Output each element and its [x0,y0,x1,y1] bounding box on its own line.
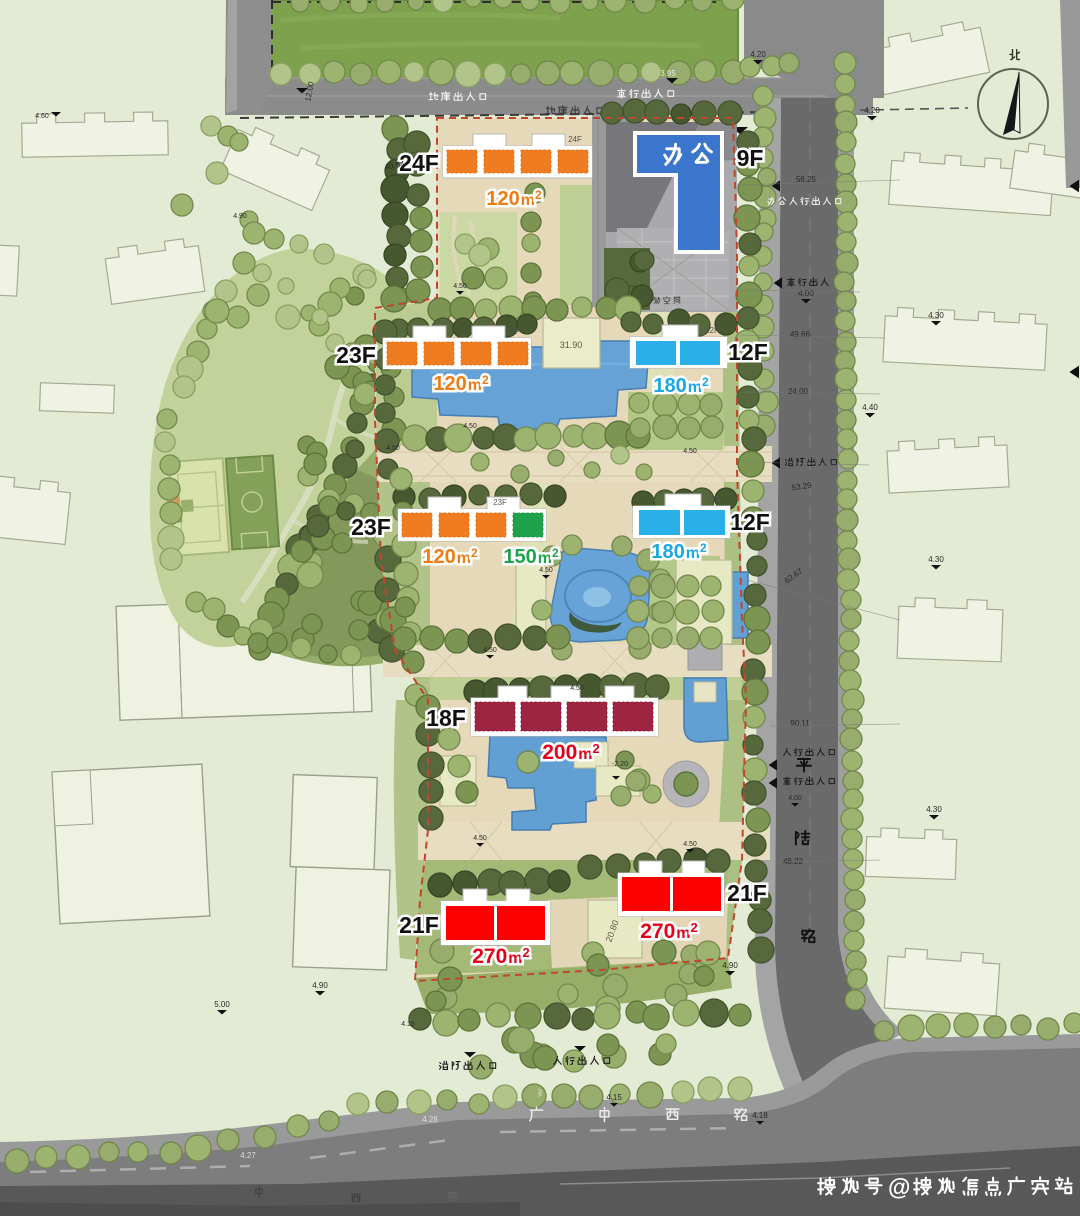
svg-text:12F: 12F [705,326,719,335]
svg-text:4.50: 4.50 [463,423,477,430]
svg-text:23F: 23F [493,498,507,507]
svg-text:4.18: 4.18 [752,1111,768,1120]
svg-text:23F: 23F [351,514,391,540]
svg-text:-2.20: -2.20 [612,761,628,768]
svg-text:4.50: 4.50 [539,567,553,574]
svg-text:90.11: 90.11 [790,719,810,728]
svg-text:21F: 21F [399,912,439,938]
svg-text:23F: 23F [336,342,376,368]
svg-text:5.00: 5.00 [214,1000,230,1009]
svg-text:4.50: 4.50 [570,685,584,692]
svg-text:9F: 9F [737,145,764,171]
svg-text:4.50: 4.50 [683,841,697,848]
svg-text:4.50: 4.50 [473,835,487,842]
svg-text:4.27: 4.27 [240,1151,256,1160]
svg-text:24F: 24F [399,150,439,176]
svg-text:4.15: 4.15 [401,1021,415,1028]
svg-text:18F: 18F [426,705,466,731]
svg-text:4.40: 4.40 [862,403,878,412]
svg-text:180m2: 180m2 [653,375,709,397]
svg-text:49.66: 49.66 [790,330,811,339]
svg-text:4.15: 4.15 [606,1093,622,1102]
svg-text:4.30: 4.30 [926,805,942,814]
svg-text:4.90: 4.90 [233,213,247,220]
svg-text:180m2: 180m2 [651,541,707,563]
svg-text:4.60: 4.60 [35,113,49,120]
svg-text:4.50: 4.50 [483,647,497,654]
svg-text:4.00: 4.00 [798,289,814,298]
svg-text:4.30: 4.30 [928,311,944,320]
svg-text:@: @ [888,1174,910,1200]
svg-text:120m2: 120m2 [486,188,542,210]
svg-text:4.90: 4.90 [312,981,328,990]
svg-text:4.00: 4.00 [788,795,802,802]
svg-text:12F: 12F [728,339,768,365]
svg-text:12F: 12F [730,509,770,535]
svg-text:12F: 12F [708,495,722,504]
svg-text:4.50: 4.50 [453,283,467,290]
svg-text:4.20: 4.20 [750,50,766,59]
svg-text:24F: 24F [568,135,582,144]
svg-text:150m2: 150m2 [503,546,559,568]
svg-text:4.30: 4.30 [928,555,944,564]
svg-text:4.20: 4.20 [864,106,880,115]
svg-text:120m2: 120m2 [422,546,478,568]
svg-text:4.28: 4.28 [422,1115,438,1124]
svg-text:4.50: 4.50 [683,448,697,455]
svg-text:24.00: 24.00 [788,387,809,396]
svg-text:4.50: 4.50 [386,445,400,452]
svg-text:120m2: 120m2 [433,373,489,395]
svg-text:31.90: 31.90 [560,340,583,350]
svg-text:23F: 23F [506,327,520,336]
svg-text:3.95: 3.95 [660,69,676,78]
svg-text:4.90: 4.90 [722,961,738,970]
svg-text:21F: 21F [727,880,767,906]
